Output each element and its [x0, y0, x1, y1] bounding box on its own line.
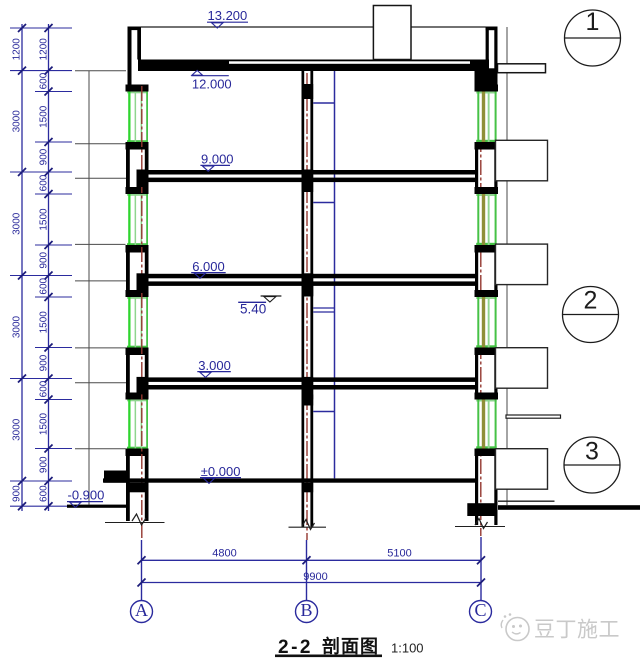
svg-text:3000: 3000 — [12, 110, 23, 133]
svg-text:5100: 5100 — [387, 548, 411, 560]
svg-text:600: 600 — [39, 72, 50, 89]
svg-text:600: 600 — [39, 277, 50, 294]
svg-text:B: B — [300, 600, 312, 620]
svg-text:1500: 1500 — [39, 412, 50, 435]
svg-text:1200: 1200 — [12, 38, 23, 61]
svg-text:600: 600 — [39, 174, 50, 191]
svg-text:900: 900 — [39, 148, 50, 165]
svg-text:1500: 1500 — [39, 208, 50, 231]
svg-text:9.000: 9.000 — [201, 151, 234, 166]
svg-text:1500: 1500 — [39, 105, 50, 128]
svg-text:A: A — [135, 600, 148, 620]
svg-text:3000: 3000 — [12, 212, 23, 235]
svg-text:13.200: 13.200 — [208, 8, 248, 23]
svg-text:4800: 4800 — [212, 548, 236, 560]
svg-text:2: 2 — [584, 287, 598, 315]
svg-text:900: 900 — [39, 456, 50, 473]
svg-text:900: 900 — [12, 485, 23, 502]
svg-text:900: 900 — [39, 354, 50, 371]
svg-text:5.40: 5.40 — [240, 302, 266, 317]
svg-text:600: 600 — [39, 380, 50, 397]
svg-text:1200: 1200 — [39, 38, 50, 61]
svg-text:3: 3 — [585, 438, 599, 466]
svg-text:12.000: 12.000 — [192, 77, 232, 92]
svg-text:6.000: 6.000 — [192, 259, 225, 274]
svg-text:C: C — [474, 600, 486, 620]
svg-text:1:100: 1:100 — [391, 641, 424, 656]
svg-text:9900: 9900 — [303, 571, 327, 583]
svg-text:1500: 1500 — [39, 311, 50, 334]
svg-text:剖面图: 剖面图 — [322, 636, 379, 657]
svg-text:3000: 3000 — [12, 315, 23, 338]
svg-text:3000: 3000 — [12, 418, 23, 441]
svg-text:1: 1 — [586, 8, 600, 36]
svg-text:600: 600 — [39, 485, 50, 502]
svg-text:-0.900: -0.900 — [68, 488, 105, 503]
svg-text:±0.000: ±0.000 — [201, 464, 241, 479]
svg-text:900: 900 — [39, 251, 50, 268]
svg-text:豆丁施工: 豆丁施工 — [534, 619, 620, 642]
svg-text:3.000: 3.000 — [198, 358, 231, 373]
